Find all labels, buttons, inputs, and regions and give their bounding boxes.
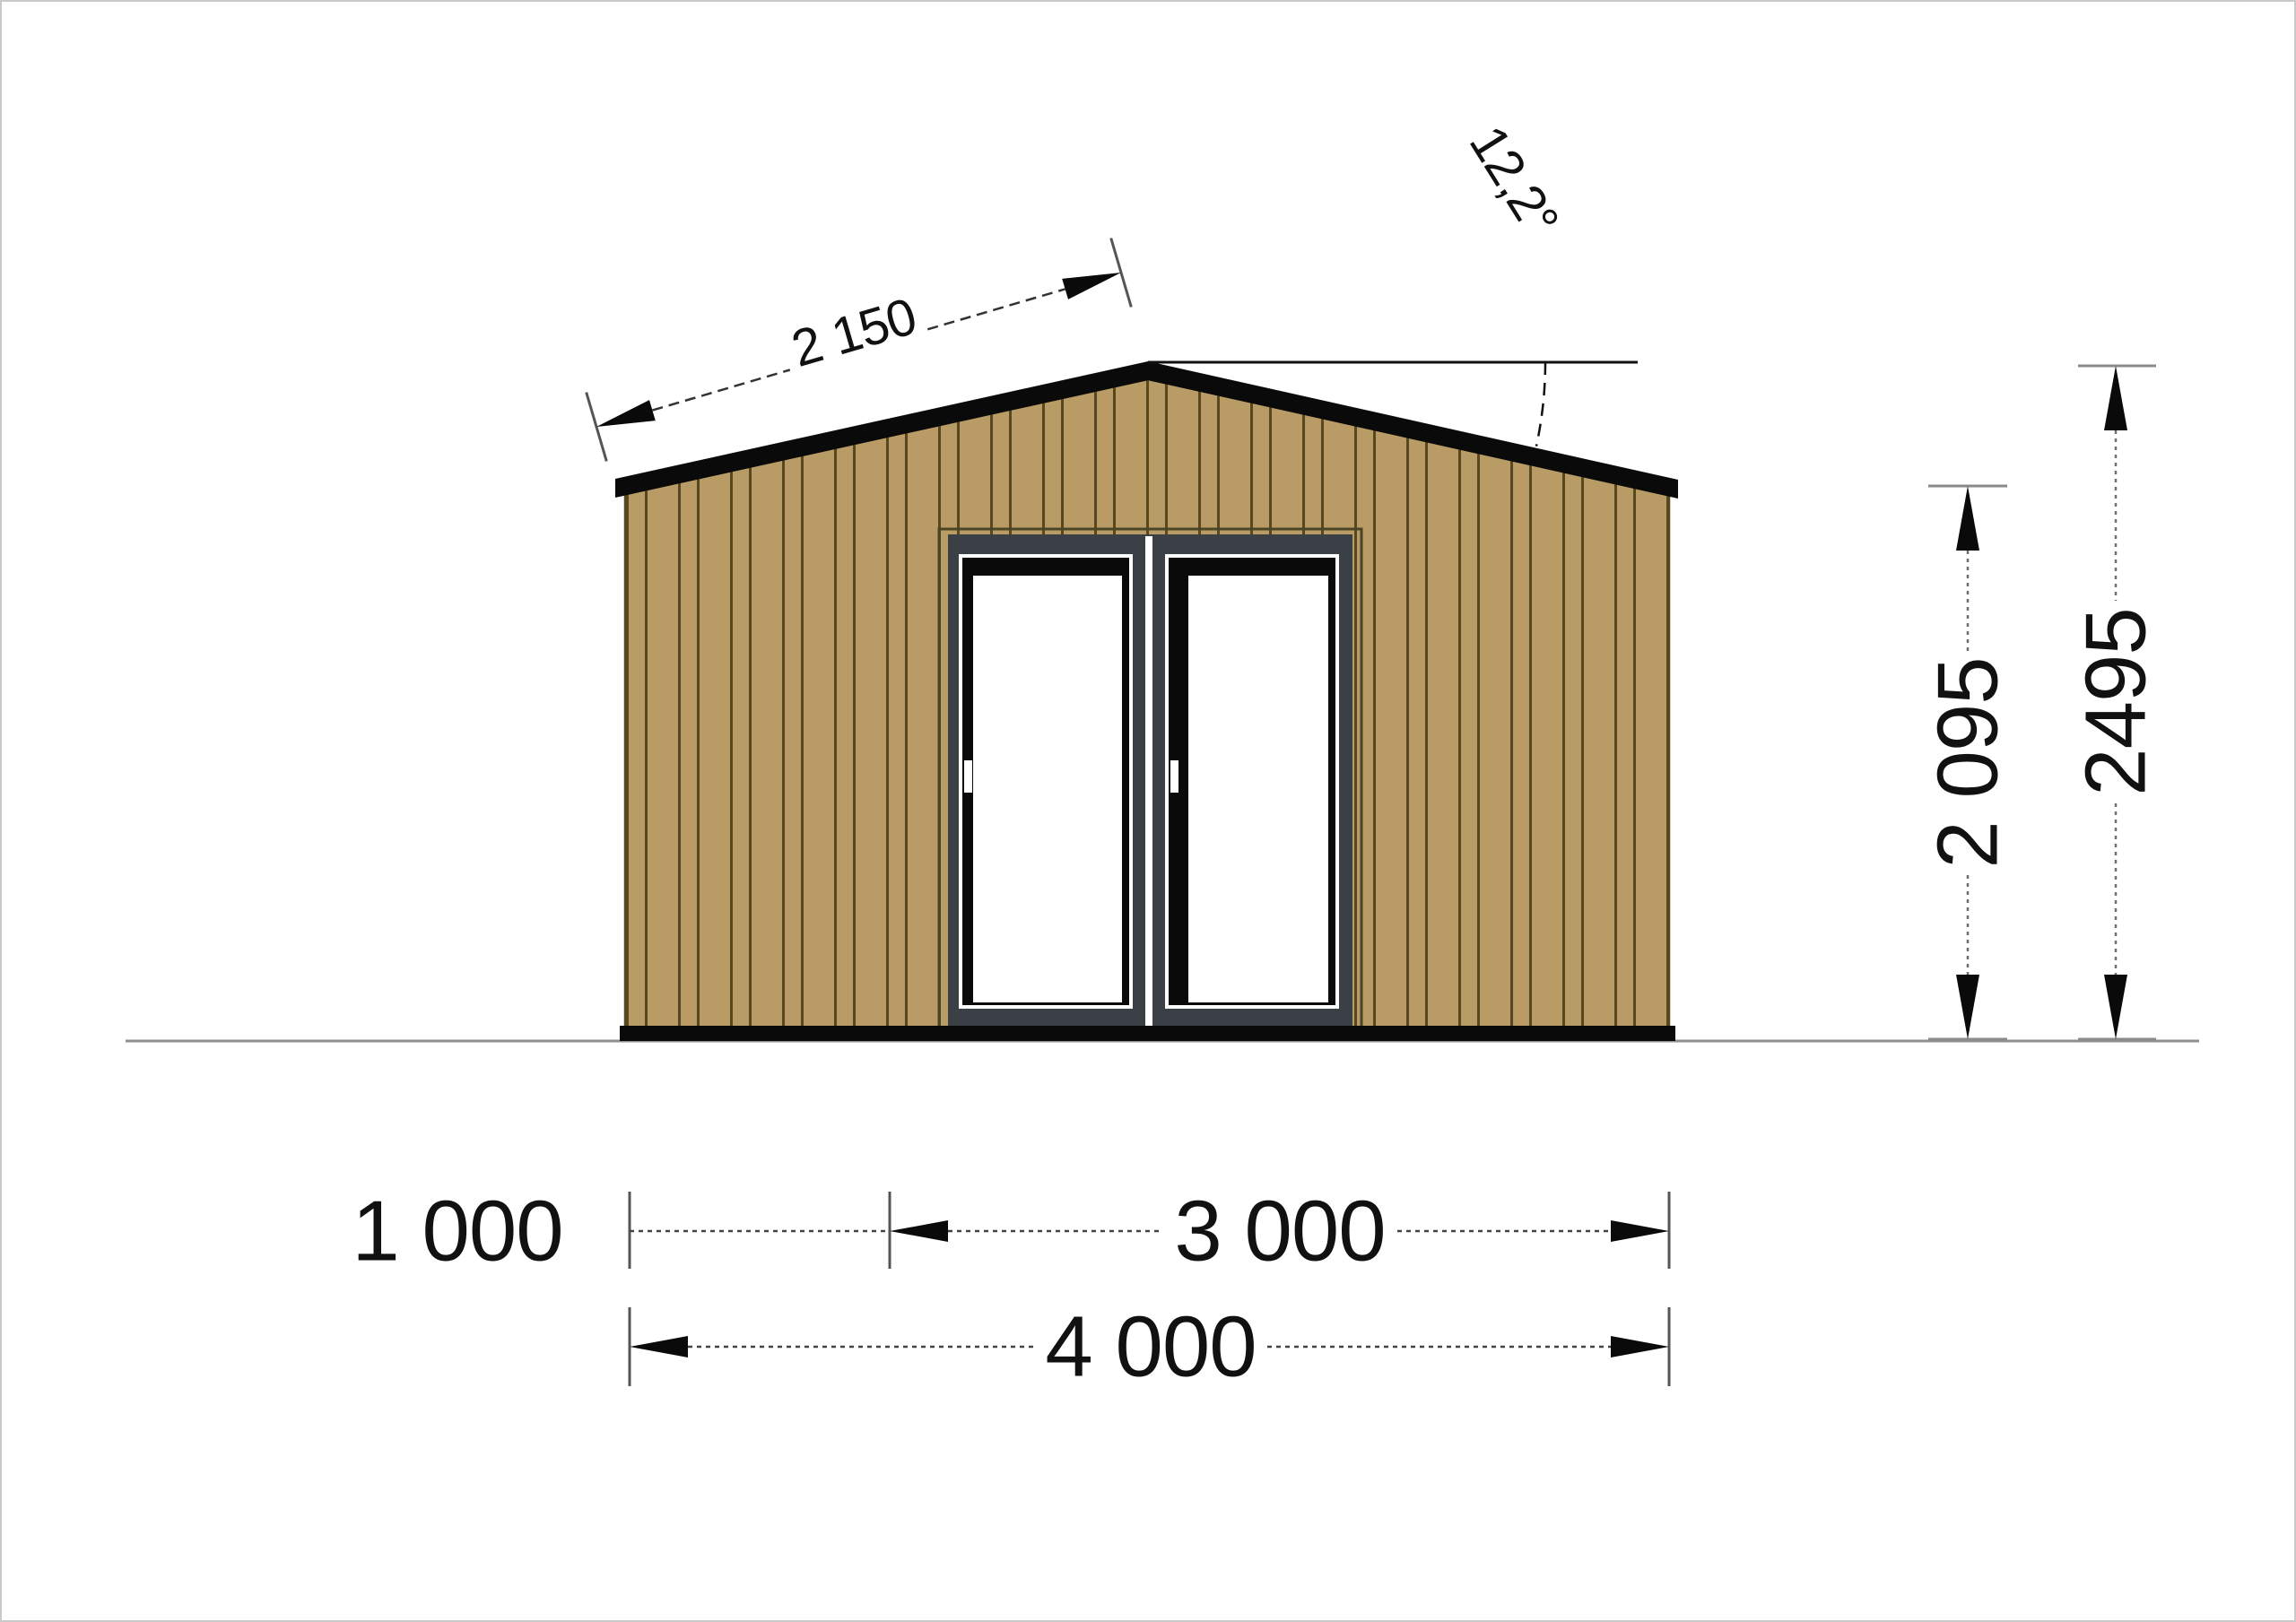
dim-label-left-offset: 1 000 [352,1184,562,1279]
elevation-drawing-canvas: 2 150 12,2° 2 095 2495 1 000 3 000 [0,0,2296,1622]
door-center-gap [1145,536,1152,1026]
door-leaf-right-handle [1170,760,1178,793]
door-leaf-left-handle [964,760,972,793]
dim-label-total-width: 4 000 [1045,1299,1256,1395]
dim-label-wall-height: 2 095 [1920,657,2016,868]
dim-label-total-height: 2495 [2068,608,2164,796]
door-leaf-left [959,554,1133,1009]
door-leaf-right-glass [1188,576,1328,1002]
door-leaf-left-glass [973,576,1122,1002]
elevation-drawing-page: 2 150 12,2° 2 095 2495 1 000 3 000 [0,0,2296,1622]
double-door [939,529,1361,1028]
dim-label-inner-span: 3 000 [1174,1184,1385,1279]
door-leaf-right [1165,554,1339,1009]
base-plinth [620,1026,1675,1041]
